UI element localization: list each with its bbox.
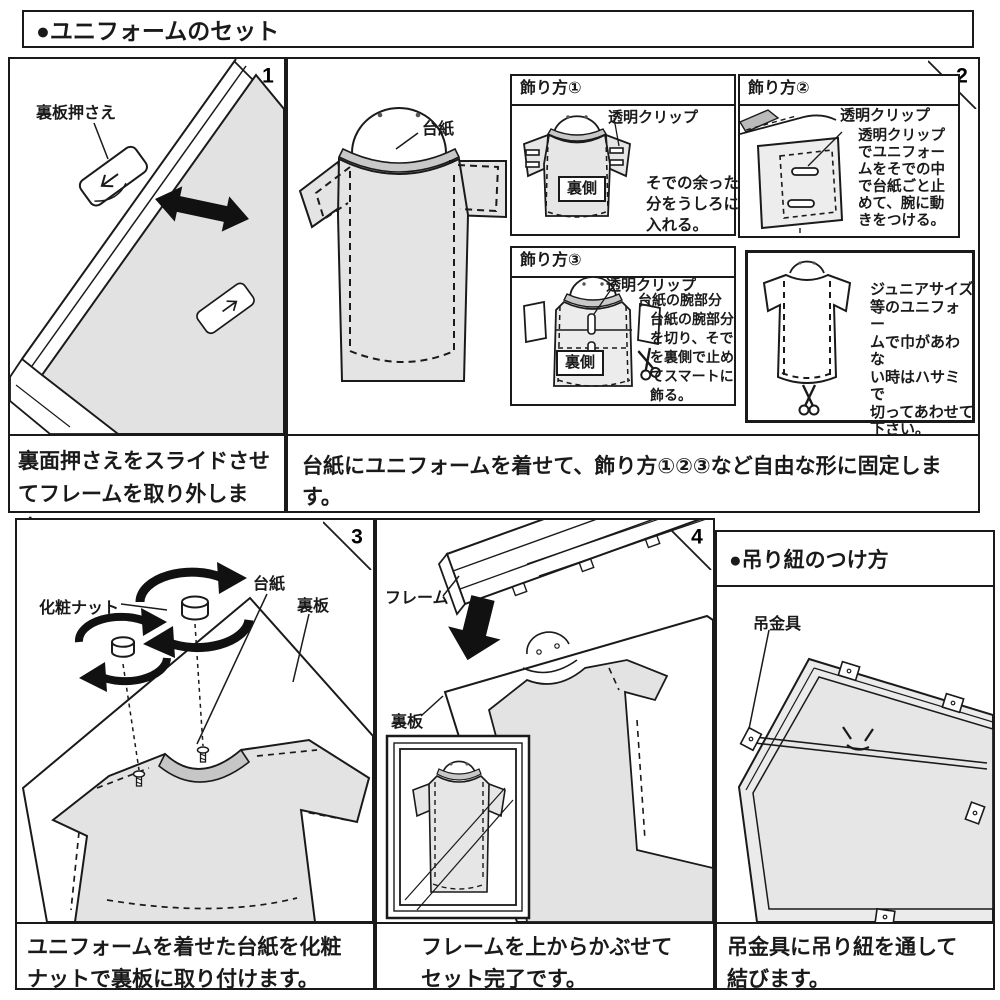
step4-illustration: [377, 520, 713, 922]
backboard-clip-graphic: [77, 144, 151, 210]
deco3-note-line1: 台紙の腕部分: [650, 310, 738, 329]
backboard-label-step4: 裏板: [391, 708, 423, 732]
deco1-clip-label: 透明クリップ: [608, 106, 698, 127]
main-title-text: ●ユニフォームのセット: [36, 12, 279, 46]
deco1-note-line3: 入れる。: [646, 215, 742, 236]
deco3-box: 飾り方③ 透明クリップ: [510, 246, 736, 406]
step3-panel: 3: [15, 518, 375, 990]
decorative-nut-graphic-2: [112, 637, 134, 657]
step2-panel: 2 台紙 飾り方①: [286, 57, 980, 513]
deco3-note: 台紙の腕部分 を切り、そで を裏側で止め てスマートに 飾る。: [650, 310, 738, 405]
deco1-box: 飾り方① 透明クリップ 裏側 そでの余った 分をうしろに 入れる。: [510, 74, 736, 236]
deco3-back-label: 裏側: [556, 350, 604, 376]
framed-uniform-graphic: [387, 736, 529, 918]
deco2-clip-label: 透明クリップ: [840, 104, 930, 125]
instruction-sheet: ●ユニフォームのセット 1: [0, 0, 1000, 1000]
main-title: ●ユニフォームのセット: [22, 10, 974, 48]
place-down-arrow-icon: [441, 591, 509, 666]
deco3-note-line5: 飾る。: [650, 386, 738, 405]
hanging-panel: ●吊り紐のつけ方: [715, 530, 995, 990]
step3-illustration: [17, 520, 373, 922]
step4-caption: フレームを上からかぶせて セット完了です。: [377, 922, 713, 988]
step1-panel: 1: [8, 57, 286, 513]
deco2-note-line4: で台紙ごと止: [858, 179, 950, 196]
deco3-note-line3: を裏側で止め: [650, 348, 738, 367]
nut-label: 化粧ナット: [39, 594, 119, 618]
hanging-caption: 吊金具に吊り紐を通して 結びます。: [717, 922, 993, 988]
step3-caption-line1: ユニフォームを着せた台紙を化粧: [27, 932, 373, 964]
deco1-note: そでの余った 分をうしろに 入れる。: [646, 173, 742, 236]
cardboard-label: 台紙: [422, 115, 454, 139]
deco3-note-line2: を切り、そで: [650, 329, 738, 348]
deco2-note-line6: きをつける。: [858, 213, 950, 230]
junior-note-line5: 切ってあわせて: [870, 404, 974, 422]
step2-caption: 台紙にユニフォームを着せて、飾り方①②③など自由な形に固定します。: [288, 434, 978, 511]
hook-clip-3: [741, 728, 762, 750]
junior-note: ジュニアサイズ 等のユニフォー ムで巾があわな い時はハサミで 切ってあわせて …: [870, 281, 974, 439]
deco2-box: 飾り方② 透明クリップ 透明クリップ でユニフォー ムをそでの中 で台紙ごと止 …: [738, 74, 960, 238]
step3-caption-line2: ナットで裏板に取り付けます。: [27, 964, 373, 996]
deco1-note-line2: 分をうしろに: [646, 194, 742, 215]
deco2-note-line3: ムをそでの中: [858, 162, 950, 179]
junior-note-line1: ジュニアサイズ: [870, 281, 974, 299]
deco2-note: 透明クリップ でユニフォー ムをそでの中 で台紙ごと止 めて、腕に動 きをつける…: [858, 128, 950, 230]
hanging-caption-line2: 結びます。: [727, 964, 993, 996]
backboard-holder-label: 裏板押さえ: [36, 99, 116, 123]
scissors-icon: [800, 385, 819, 415]
deco1-back-label: 裏側: [558, 176, 606, 202]
deco3-arm-label: 台紙の腕部分: [638, 290, 722, 310]
deco3-note-line4: てスマートに: [650, 367, 738, 386]
deco2-note-line2: でユニフォー: [858, 145, 950, 162]
deco1-title: 飾り方①: [512, 76, 734, 106]
step1-caption: 裏面押さえをスライドさせ てフレームを取り外します。: [10, 434, 284, 511]
junior-note-line3: ムで巾があわな: [870, 334, 974, 369]
deco1-note-line1: そでの余った: [646, 173, 742, 194]
deco2-title: 飾り方②: [740, 76, 958, 106]
step4-panel: 4: [375, 518, 715, 990]
junior-illustration: [754, 257, 866, 419]
hook-clip-5: [875, 909, 895, 922]
step4-caption-line2: セット完了です。: [421, 964, 713, 996]
step2-caption-text: 台紙にユニフォームを着せて、飾り方①②③など自由な形に固定します。: [302, 455, 942, 509]
hook-label: 吊金具: [753, 610, 801, 634]
cardboard-label-step3: 台紙: [253, 570, 285, 594]
hanging-title-text: ●吊り紐のつけ方: [729, 544, 889, 574]
deco2-note-line1: 透明クリップ: [858, 128, 950, 145]
step1-caption-line1: 裏面押さえをスライドさせ: [18, 445, 284, 478]
hanging-illustration: [717, 587, 993, 922]
frame-label: フレーム: [385, 584, 449, 608]
decorative-nut-graphic: [182, 597, 208, 620]
junior-size-box: ジュニアサイズ 等のユニフォー ムで巾があわな い時はハサミで 切ってあわせて …: [745, 250, 975, 423]
backboard-label-step3: 裏板: [297, 592, 329, 616]
junior-note-line4: い時はハサミで: [870, 369, 974, 404]
step2-shirt-illustration: [292, 65, 510, 427]
hanging-caption-line1: 吊金具に吊り紐を通して: [727, 932, 993, 964]
step3-caption: ユニフォームを着せた台紙を化粧 ナットで裏板に取り付けます。: [17, 922, 373, 988]
junior-note-line2: 等のユニフォー: [870, 299, 974, 334]
hanging-title: ●吊り紐のつけ方: [717, 532, 993, 587]
deco2-note-line5: めて、腕に動: [858, 196, 950, 213]
step4-caption-line1: フレームを上からかぶせて: [421, 932, 713, 964]
